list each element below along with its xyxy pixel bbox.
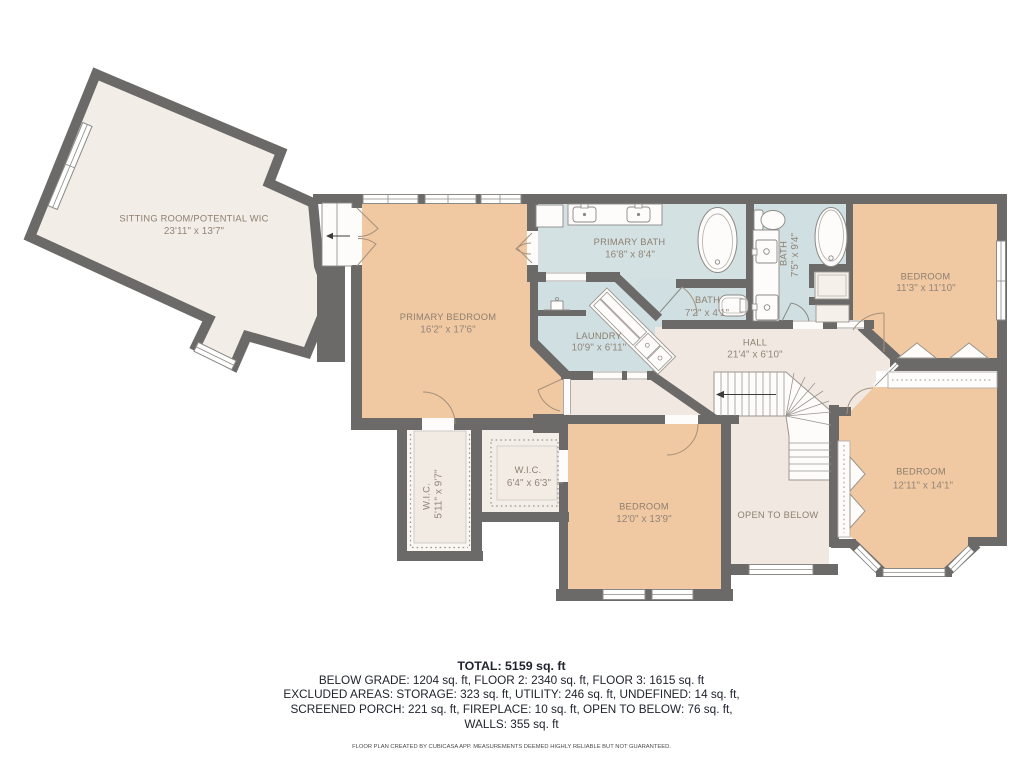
svg-text:LAUNDRY: LAUNDRY xyxy=(576,331,622,341)
svg-text:6'4" x 6'3": 6'4" x 6'3" xyxy=(507,478,552,489)
svg-text:BATH: BATH xyxy=(695,295,720,305)
svg-text:BEDROOM: BEDROOM xyxy=(901,272,951,282)
svg-text:5'11" x 9'7": 5'11" x 9'7" xyxy=(434,469,445,519)
svg-text:7'2" x 4'1": 7'2" x 4'1" xyxy=(685,308,730,319)
svg-text:OPEN TO BELOW: OPEN TO BELOW xyxy=(738,510,819,520)
svg-text:BEDROOM: BEDROOM xyxy=(619,502,669,512)
svg-text:W.I.C.: W.I.C. xyxy=(515,465,542,475)
svg-text:W.I.C.: W.I.C. xyxy=(422,483,432,510)
svg-text:PRIMARY BATH: PRIMARY BATH xyxy=(594,237,666,247)
svg-text:16'8" x 8'4": 16'8" x 8'4" xyxy=(605,250,655,261)
svg-text:PRIMARY BEDROOM: PRIMARY BEDROOM xyxy=(400,312,496,322)
svg-text:21'4" x 6'10": 21'4" x 6'10" xyxy=(727,350,783,361)
svg-text:16'2" x 17'6": 16'2" x 17'6" xyxy=(420,325,476,336)
svg-text:SITTING ROOM/POTENTIAL WIC: SITTING ROOM/POTENTIAL WIC xyxy=(119,214,268,224)
svg-text:12'11" x 14'1": 12'11" x 14'1" xyxy=(893,481,954,492)
svg-text:BATH: BATH xyxy=(779,241,789,266)
svg-text:11'3" x 11'10": 11'3" x 11'10" xyxy=(896,283,956,294)
svg-text:23'11" x 13'7": 23'11" x 13'7" xyxy=(164,226,225,237)
svg-text:10'9" x 6'11": 10'9" x 6'11" xyxy=(572,343,627,354)
svg-text:12'0" x 13'9": 12'0" x 13'9" xyxy=(616,514,672,525)
svg-text:BEDROOM: BEDROOM xyxy=(896,467,946,477)
svg-text:7'5" x 9'4": 7'5" x 9'4" xyxy=(790,232,801,277)
svg-text:HALL: HALL xyxy=(743,338,767,348)
